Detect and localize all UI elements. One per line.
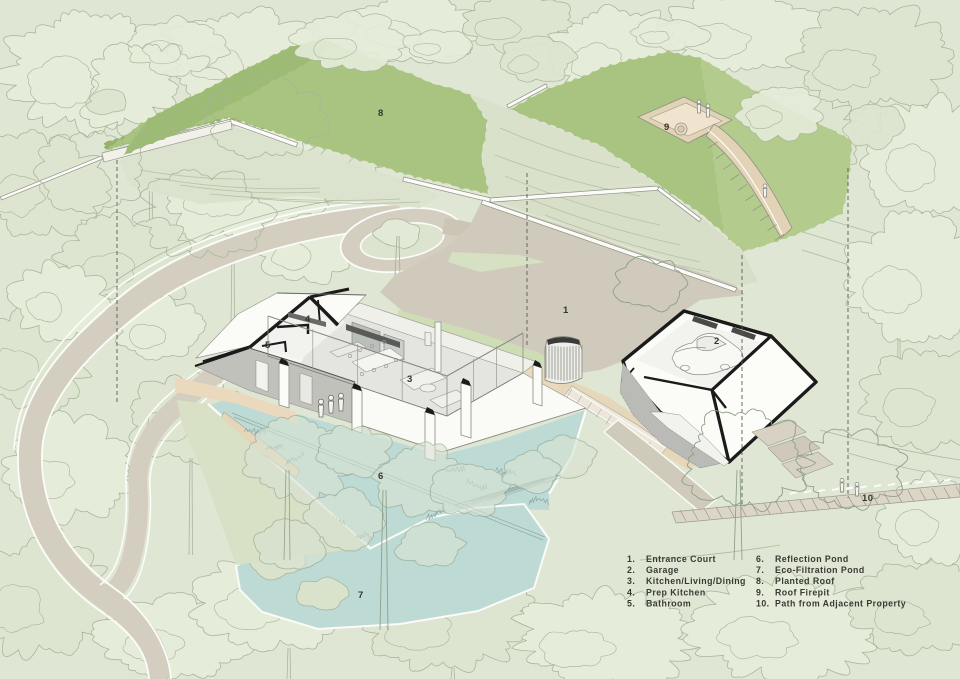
svg-text:Bathroom: Bathroom (646, 598, 691, 608)
svg-text:1: 1 (563, 305, 569, 316)
svg-text:7.: 7. (756, 565, 764, 575)
svg-text:1.: 1. (627, 554, 635, 564)
svg-text:8.: 8. (756, 576, 764, 586)
svg-text:6: 6 (378, 471, 384, 482)
svg-text:6.: 6. (756, 554, 764, 564)
svg-text:Kitchen/Living/Dining: Kitchen/Living/Dining (646, 576, 746, 586)
svg-text:7: 7 (358, 590, 364, 601)
svg-text:9: 9 (664, 122, 670, 133)
svg-text:Roof Firepit: Roof Firepit (775, 587, 830, 597)
svg-text:4: 4 (305, 314, 311, 325)
svg-text:8: 8 (378, 108, 384, 119)
svg-text:3: 3 (407, 374, 413, 385)
svg-text:Garage: Garage (646, 565, 679, 575)
svg-text:4.: 4. (627, 587, 635, 597)
svg-text:5.: 5. (627, 598, 635, 608)
svg-text:5: 5 (265, 340, 271, 351)
svg-text:Prep Kitchen: Prep Kitchen (646, 587, 706, 597)
svg-text:Reflection Pond: Reflection Pond (775, 554, 849, 564)
svg-text:Eco-Filtration Pond: Eco-Filtration Pond (775, 565, 865, 575)
svg-text:Entrance Court: Entrance Court (646, 554, 716, 564)
svg-text:2: 2 (714, 336, 720, 347)
svg-text:9.: 9. (756, 587, 764, 597)
svg-text:Planted Roof: Planted Roof (775, 576, 835, 586)
svg-text:10: 10 (862, 493, 874, 504)
svg-text:10.: 10. (756, 598, 770, 608)
svg-text:Path from Adjacent Property: Path from Adjacent Property (775, 598, 906, 608)
svg-text:3.: 3. (627, 576, 635, 586)
svg-text:2.: 2. (627, 565, 635, 575)
